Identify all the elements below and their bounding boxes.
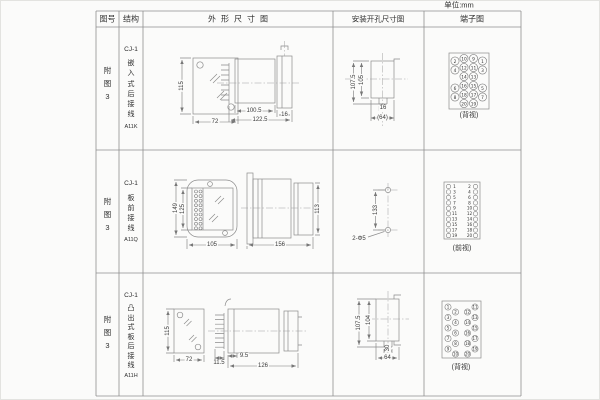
manual-page: 2468101214161820911131517191357 [0, 0, 600, 400]
r3-terminal-diagram: 1357924681012141618201113151719 [442, 301, 481, 358]
terminal-circle [473, 217, 477, 221]
terminal-number: 10 [467, 206, 473, 211]
r2-dim-front-width: 105 [206, 242, 218, 248]
terminal-circle [195, 213, 198, 216]
r2-dim-inner-height: 125 [180, 203, 186, 215]
r2-dim-side-height: 113 [315, 203, 321, 215]
terminal-number: 3 [453, 189, 456, 194]
terminal-number: 9 [453, 206, 456, 211]
terminal-number: 8 [454, 341, 457, 346]
terminal-circle [473, 206, 477, 210]
drawing-canvas: 2468101214161820911131517191357 [1, 1, 600, 400]
terminal-circle [195, 218, 198, 221]
r3-terminal-caption: (背视) [452, 362, 471, 372]
terminal-circle [446, 212, 450, 216]
terminal-number: 14 [465, 320, 471, 325]
terminal-number: 5 [447, 325, 450, 330]
r3-dim-pin-depth: 11.5 [212, 360, 225, 366]
r1-fig-no: 附图3 [104, 64, 112, 103]
terminal-number: 7 [481, 95, 484, 101]
terminal-circle [199, 218, 202, 221]
r1-terminal-caption: (背视) [460, 110, 479, 120]
terminal-circle [199, 204, 202, 207]
terminal-number: 13 [471, 74, 477, 80]
terminal-number: 5 [453, 195, 456, 200]
terminal-number: 14 [467, 217, 473, 222]
r1-dim-mount-h2: 105 [359, 74, 365, 86]
terminal-circle [473, 195, 477, 199]
terminal-number: 18 [461, 92, 467, 98]
terminal-circle [446, 233, 450, 237]
r1-terminal-diagram: 2468101214161820911131517191357 [449, 53, 489, 109]
r3-mount-type: 凸出式板后接线 [128, 304, 135, 371]
terminal-number: 2 [454, 59, 457, 65]
terminal-circle [199, 222, 202, 225]
terminal-number: 20 [467, 233, 473, 238]
terminal-number: 1 [453, 184, 456, 189]
terminal-number: 16 [461, 83, 467, 89]
r1-model: CJ-1 [124, 46, 138, 53]
terminal-number: 17 [452, 228, 458, 233]
terminal-number: 12 [461, 65, 467, 71]
terminal-number: 6 [454, 330, 457, 335]
terminal-number: 13 [452, 217, 458, 222]
unit-label: 单位:mm [444, 0, 474, 11]
terminal-number: 9 [447, 346, 450, 351]
r3-dim-front-height: 115 [165, 325, 171, 337]
terminal-circle [199, 199, 202, 202]
terminal-number: 13 [472, 315, 478, 320]
terminal-number: 11 [472, 304, 478, 309]
r3-side-view [208, 299, 306, 368]
terminal-circle [199, 227, 202, 230]
r1-dim-body-depth: 100.5 [245, 108, 262, 114]
terminal-number: 4 [468, 189, 471, 194]
terminal-number: 10 [461, 56, 467, 62]
terminal-number: 11 [471, 65, 477, 71]
r3-dim-mount-h1: 107.5 [356, 314, 362, 331]
terminal-number: 9 [472, 56, 475, 62]
r2-fig-no: 附图3 [104, 195, 112, 234]
terminal-number: 3 [447, 315, 450, 320]
terminal-number: 7 [447, 336, 450, 341]
r3-dim-mount-w2: 64 [383, 355, 392, 361]
terminal-number: 12 [467, 211, 473, 216]
terminal-circle [199, 190, 202, 193]
terminal-number: 15 [471, 83, 477, 89]
r3-front-view [166, 309, 204, 362]
terminal-number: 3 [481, 68, 484, 74]
header-outline: 外形尺寸图 [203, 14, 273, 25]
terminal-circle [446, 195, 450, 199]
r2-code: A11Q [124, 237, 138, 243]
terminal-number: 18 [467, 228, 473, 233]
terminal-circle [195, 204, 198, 207]
r3-dim-front-width: 72 [185, 357, 194, 363]
terminal-number: 16 [465, 330, 471, 335]
terminal-circle [195, 208, 198, 211]
r1-dim-total-depth: 122.5 [251, 117, 268, 123]
r3-model: CJ-1 [124, 292, 138, 299]
header-terminal: 端子图 [460, 14, 484, 25]
r3-dim-mount-w1: 30 [385, 344, 391, 353]
terminal-circle [446, 206, 450, 210]
terminal-number: 6 [468, 195, 471, 200]
terminal-number: 14 [461, 74, 467, 80]
terminal-circle [473, 201, 477, 205]
r3-dim-mount-h2: 104 [366, 314, 372, 326]
table-grid [96, 11, 521, 396]
terminal-number: 2 [454, 309, 457, 314]
terminal-number: 2 [468, 184, 471, 189]
terminal-circle [473, 228, 477, 232]
r1-dim-flange-depth: 16 [280, 112, 289, 118]
r1-mount-type: 嵌入式后接线 [128, 59, 135, 121]
terminal-circle [195, 190, 198, 193]
terminal-circle [446, 222, 450, 226]
terminal-number: 19 [471, 101, 477, 107]
terminal-circle [446, 184, 450, 188]
terminal-number: 16 [467, 222, 473, 227]
terminal-number: 20 [461, 101, 467, 107]
r3-dim-total-depth: 126 [257, 363, 269, 369]
terminal-number: 4 [454, 68, 457, 74]
terminal-circle [199, 195, 202, 198]
terminal-circle [446, 190, 450, 194]
r1-code: A11K [124, 124, 137, 130]
r2-dim-front-height: 149 [173, 202, 179, 214]
header-fig-no: 图号 [100, 14, 116, 25]
terminal-circle [473, 212, 477, 216]
terminal-circle [473, 233, 477, 237]
r1-dim-front-height: 115 [179, 80, 185, 92]
terminal-number: 6 [454, 86, 457, 92]
terminal-circle [446, 228, 450, 232]
r3-dim-gap: 9.5 [239, 353, 249, 359]
r2-terminal-caption: (前视) [453, 243, 472, 253]
terminal-number: 8 [468, 200, 471, 205]
terminal-number: 12 [465, 309, 471, 314]
terminal-circle [195, 195, 198, 198]
terminal-circle [195, 199, 198, 202]
r2-model: CJ-1 [124, 180, 138, 187]
terminal-circle [473, 190, 477, 194]
terminal-number: 18 [465, 341, 471, 346]
header-mounting: 安装开孔尺寸图 [352, 14, 405, 25]
terminal-number: 1 [447, 304, 450, 309]
r2-dim-hole-dist: 133 [373, 204, 379, 216]
terminal-number: 20 [465, 351, 471, 356]
r1-dim-mount-w2: (64) [376, 115, 389, 121]
header-structure: 结构 [123, 14, 139, 25]
r1-dim-mount-h1: 107.5 [351, 73, 357, 90]
r1-dim-front-width: 72 [211, 119, 220, 125]
terminal-number: 5 [481, 86, 484, 92]
terminal-number: 19 [472, 346, 478, 351]
terminal-number: 8 [454, 95, 457, 101]
terminal-number: 17 [471, 92, 477, 98]
r3-fig-no: 附图3 [104, 313, 112, 352]
terminal-number: 7 [453, 200, 456, 205]
r2-hole-label: 2-Φ5 [351, 236, 366, 242]
terminal-number: 19 [452, 233, 458, 238]
r3-code: A11H [124, 373, 137, 379]
r2-terminal-diagram: 1357911131517192468101214161820 [444, 182, 480, 239]
terminal-circle [446, 201, 450, 205]
r2-mount-type: 板前接线 [128, 194, 135, 234]
terminal-number: 15 [452, 222, 458, 227]
terminal-circle [199, 213, 202, 216]
r2-side-view [241, 173, 321, 249]
r3-mounting-view [357, 291, 409, 360]
r2-dim-total-depth: 156 [274, 242, 286, 248]
terminal-circle [195, 222, 198, 225]
terminal-number: 11 [452, 211, 458, 216]
terminal-circle [195, 227, 198, 230]
terminal-number: 17 [472, 336, 478, 341]
terminal-number: 15 [472, 325, 478, 330]
terminal-circle [199, 208, 202, 211]
r1-dim-mount-w1: 16 [379, 105, 388, 111]
terminal-number: 1 [481, 59, 484, 65]
terminal-circle [473, 222, 477, 226]
terminal-number: 10 [453, 351, 459, 356]
terminal-circle [446, 217, 450, 221]
terminal-circle [473, 184, 477, 188]
terminal-number: 4 [454, 320, 457, 325]
